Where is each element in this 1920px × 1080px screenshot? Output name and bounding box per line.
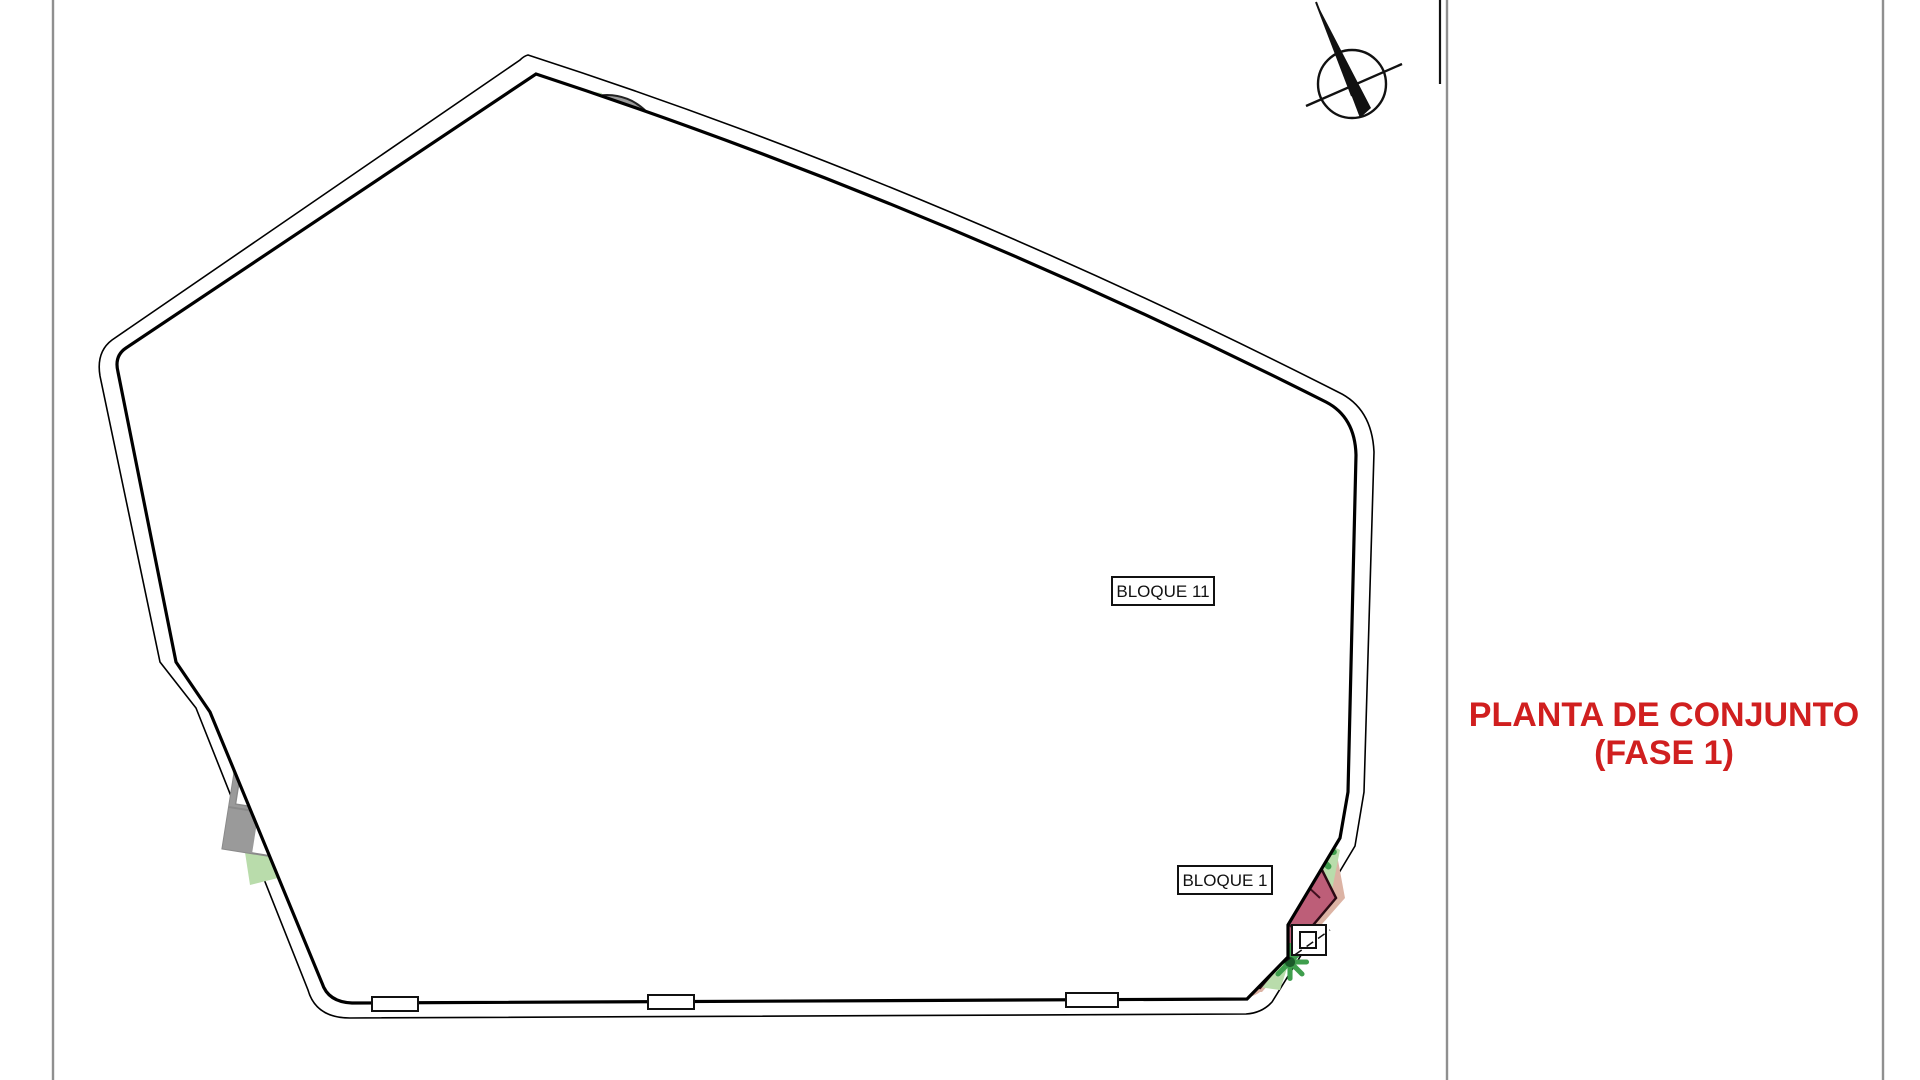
bloque-11-label-text: BLOQUE 11 bbox=[1116, 582, 1209, 601]
sheet-title-line1: PLANTA DE CONJUNTO bbox=[1469, 696, 1859, 734]
bloque-1-label: BLOQUE 1 bbox=[1178, 866, 1272, 894]
north-compass-icon bbox=[1306, 2, 1402, 118]
bloque-11-label: BLOQUE 11 bbox=[1112, 577, 1214, 605]
drawing-sheet: BLOQUE 11 BLOQUE 1 PLANTA DE CONJUNTO (F… bbox=[0, 0, 1920, 1080]
bloque-1-label-text: BLOQUE 1 bbox=[1182, 871, 1267, 890]
sheet-title-line2: (FASE 1) bbox=[1594, 734, 1734, 772]
sheet-title: PLANTA DE CONJUNTO (FASE 1) bbox=[1469, 696, 1859, 772]
site-plan-canvas: BLOQUE 11 BLOQUE 1 PLANTA DE CONJUNTO (F… bbox=[0, 0, 1920, 1080]
